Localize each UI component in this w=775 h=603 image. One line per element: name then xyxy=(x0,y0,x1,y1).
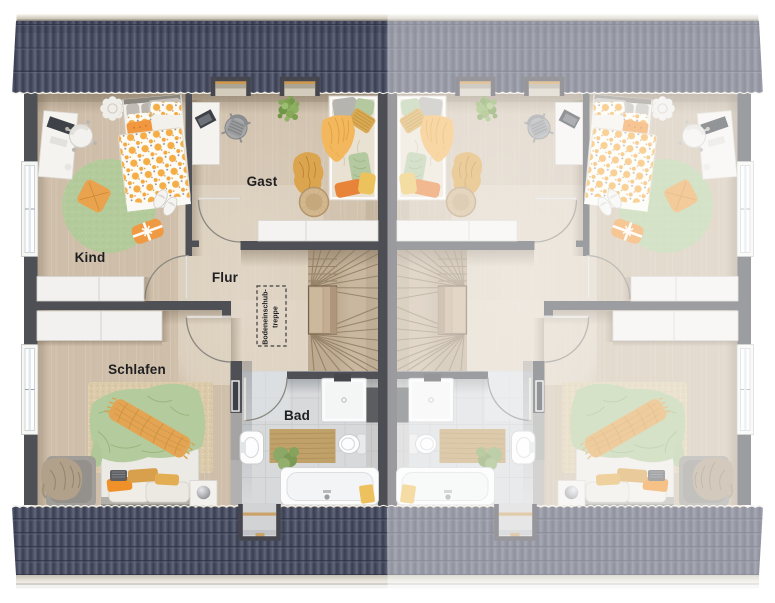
svg-text:Bodeneinschub-: Bodeneinschub- xyxy=(262,289,270,345)
svg-text:Bad: Bad xyxy=(284,408,310,423)
svg-text:Schlafen: Schlafen xyxy=(108,362,166,377)
svg-text:treppe: treppe xyxy=(272,306,280,328)
svg-text:Gast: Gast xyxy=(247,174,278,189)
svg-text:Kind: Kind xyxy=(75,250,106,265)
svg-text:Flur: Flur xyxy=(212,270,239,285)
